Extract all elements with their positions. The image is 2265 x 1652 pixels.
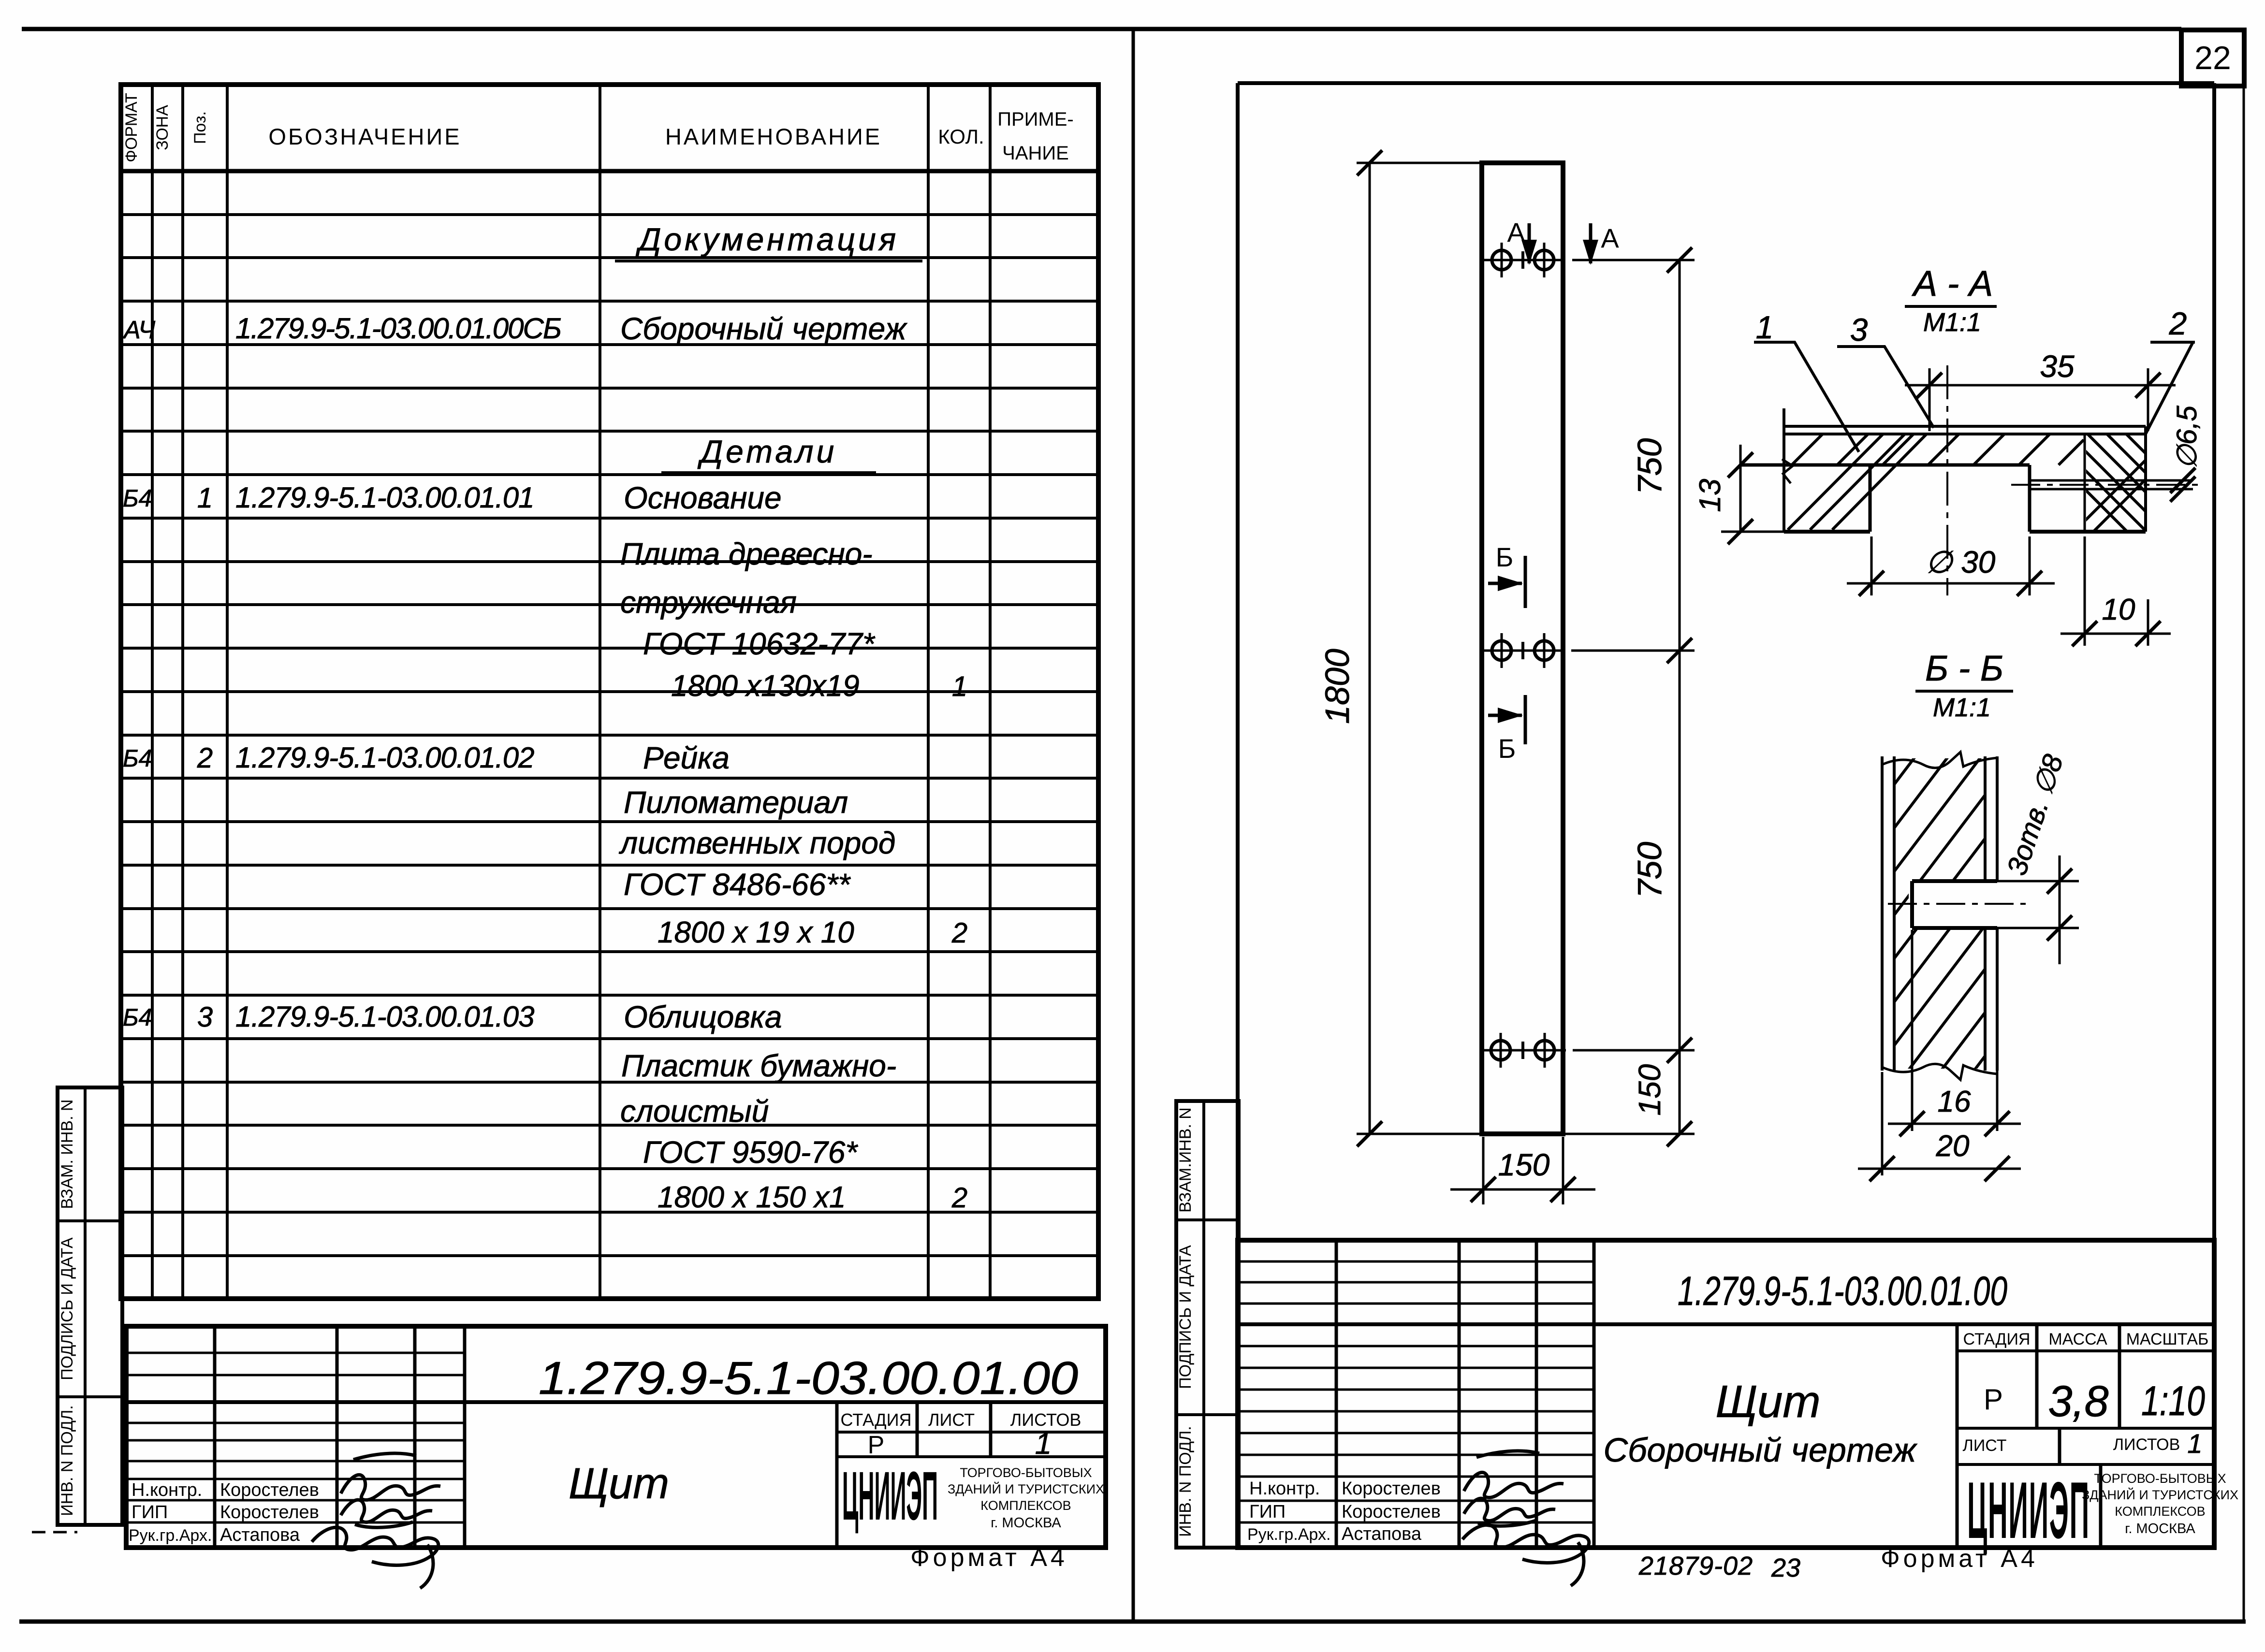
svg-text:Коростелев: Коростелев <box>220 1480 319 1500</box>
svg-text:ПОДПИСЬ И ДАТА: ПОДПИСЬ И ДАТА <box>1176 1245 1195 1389</box>
svg-text:Сборочный чертеж: Сборочный чертеж <box>620 311 907 346</box>
svg-text:2: 2 <box>197 742 213 774</box>
svg-text:750: 750 <box>1631 842 1668 898</box>
svg-text:ЛИСТ: ЛИСТ <box>1963 1436 2007 1455</box>
svg-text:13: 13 <box>1694 479 1727 512</box>
svg-text:КОЛ.: КОЛ. <box>938 125 984 148</box>
svg-text:ЗДАНИЙ И ТУРИСТСКИХ: ЗДАНИЙ И ТУРИСТСКИХ <box>2082 1487 2238 1502</box>
svg-text:1800: 1800 <box>1318 649 1356 724</box>
svg-text:М1:1: М1:1 <box>1933 693 1991 722</box>
svg-text:Щит: Щит <box>569 1460 669 1508</box>
svg-text:ЦНИИЭП: ЦНИИЭП <box>1967 1466 2090 1555</box>
svg-text:ГОСТ 8486-66**: ГОСТ 8486-66** <box>624 867 851 902</box>
svg-text:слоистый: слоистый <box>620 1094 769 1129</box>
svg-text:150: 150 <box>1498 1147 1550 1182</box>
svg-text:20: 20 <box>1936 1130 1970 1163</box>
svg-text:1.279.9-5.1-03.00.01.00: 1.279.9-5.1-03.00.01.00 <box>1678 1268 2007 1314</box>
svg-text:ЧАНИЕ: ЧАНИЕ <box>1002 143 1069 164</box>
svg-text:ИНВ. N ПОДЛ.: ИНВ. N ПОДЛ. <box>1176 1426 1195 1536</box>
svg-text:ГОСТ 10632-77*: ГОСТ 10632-77* <box>643 626 876 661</box>
svg-text:22: 22 <box>2194 40 2231 76</box>
svg-text:Б4: Б4 <box>123 485 152 512</box>
svg-text:НАИМЕНОВАНИЕ: НАИМЕНОВАНИЕ <box>665 124 882 149</box>
svg-text:Формат А4: Формат А4 <box>1881 1545 2038 1573</box>
svg-text:Б - Б: Б - Б <box>1925 648 2003 688</box>
svg-text:СТАДИЯ: СТАДИЯ <box>1963 1330 2031 1348</box>
svg-text:Н.контр.: Н.контр. <box>1249 1478 1320 1499</box>
svg-text:1.279.9-5.1-03.00.01.03: 1.279.9-5.1-03.00.01.03 <box>235 1000 534 1033</box>
svg-text:ПОДЛИСЬ И ДАТА: ПОДЛИСЬ И ДАТА <box>58 1237 76 1380</box>
svg-text:Н.контр.: Н.контр. <box>132 1480 202 1500</box>
svg-text:Облицовка: Облицовка <box>624 1000 782 1034</box>
svg-text:1.279.9-5.1-03.00.01.00: 1.279.9-5.1-03.00.01.00 <box>539 1352 1078 1404</box>
svg-text:ВЗАМ.ИНВ. N: ВЗАМ.ИНВ. N <box>1176 1107 1195 1213</box>
svg-text:Б: Б <box>1496 542 1514 572</box>
svg-text:СТАДИЯ: СТАДИЯ <box>840 1410 911 1430</box>
svg-text:1.279.9-5.1-03.00.01.01: 1.279.9-5.1-03.00.01.01 <box>235 481 534 514</box>
svg-text:Астапова: Астапова <box>220 1525 300 1545</box>
svg-text:Коростелев: Коростелев <box>220 1502 319 1522</box>
svg-text:23: 23 <box>1771 1553 1800 1582</box>
svg-text:1: 1 <box>197 482 213 514</box>
svg-text:М1:1: М1:1 <box>1923 308 1981 337</box>
svg-text:ЗДАНИЙ И ТУРИСТСКИХ: ЗДАНИЙ И ТУРИСТСКИХ <box>948 1481 1104 1496</box>
svg-text:А: А <box>1601 223 1619 253</box>
svg-text:1800 х 19 х 10: 1800 х 19 х 10 <box>658 916 854 949</box>
svg-text:3: 3 <box>1850 312 1868 348</box>
svg-text:2: 2 <box>2169 305 2187 341</box>
svg-text:Рейка: Рейка <box>643 740 730 775</box>
svg-text:1: 1 <box>952 671 967 702</box>
svg-text:35: 35 <box>2040 349 2075 384</box>
svg-text:Формат А4: Формат А4 <box>910 1544 1068 1572</box>
svg-text:ЦНИИЭП: ЦНИИЭП <box>842 1458 938 1535</box>
svg-text:Сборочный чертеж: Сборочный чертеж <box>1604 1431 1918 1469</box>
svg-text:21879-02: 21879-02 <box>1638 1551 1753 1580</box>
svg-text:Б4: Б4 <box>123 745 152 772</box>
svg-text:∅6,5: ∅6,5 <box>2171 406 2203 469</box>
svg-text:Р: Р <box>1984 1383 2003 1416</box>
svg-text:ЛИСТОВ: ЛИСТОВ <box>2113 1435 2180 1454</box>
svg-text:ИНВ. N ПОДЛ.: ИНВ. N ПОДЛ. <box>58 1405 76 1516</box>
svg-text:ЛИСТ: ЛИСТ <box>928 1410 975 1430</box>
svg-text:Пластик бумажно-: Пластик бумажно- <box>621 1048 896 1083</box>
svg-text:10: 10 <box>2102 593 2135 626</box>
svg-text:1.279.9-5.1-03.00.01.00СБ: 1.279.9-5.1-03.00.01.00СБ <box>235 312 561 345</box>
svg-text:АЧ: АЧ <box>122 316 156 344</box>
svg-text:Коростелев: Коростелев <box>1342 1502 1441 1522</box>
svg-text:750: 750 <box>1631 438 1668 495</box>
svg-text:3,8: 3,8 <box>2048 1377 2108 1426</box>
svg-text:ПРИМЕ-: ПРИМЕ- <box>997 109 1074 130</box>
svg-text:ЛИСТОВ: ЛИСТОВ <box>1010 1410 1081 1430</box>
svg-text:Основание: Основание <box>624 480 782 515</box>
svg-text:г. МОСКВА: г. МОСКВА <box>991 1515 1061 1531</box>
svg-text:Детали: Детали <box>697 434 837 469</box>
svg-text:ГОСТ 9590-76*: ГОСТ 9590-76* <box>643 1135 858 1170</box>
svg-text:ГИП: ГИП <box>132 1502 168 1522</box>
svg-text:ОБОЗНАЧЕНИЕ: ОБОЗНАЧЕНИЕ <box>268 124 461 149</box>
svg-text:1: 1 <box>1035 1427 1052 1461</box>
svg-text:А - А: А - А <box>1912 263 1993 304</box>
svg-text:3: 3 <box>197 1001 213 1033</box>
svg-text:ТОРГОВО-БЫТОВЫХ: ТОРГОВО-БЫТОВЫХ <box>960 1465 1092 1480</box>
svg-text:∅ 30: ∅ 30 <box>1926 545 1996 580</box>
svg-text:Б4: Б4 <box>123 1004 152 1031</box>
svg-text:МАССА: МАССА <box>2048 1330 2107 1348</box>
svg-text:16: 16 <box>1938 1085 1971 1118</box>
svg-text:Рук.гр.Арх.: Рук.гр.Арх. <box>1247 1525 1330 1544</box>
svg-text:1: 1 <box>2187 1428 2202 1459</box>
svg-text:ВЗАМ. ИНВ. N: ВЗАМ. ИНВ. N <box>58 1099 76 1209</box>
svg-text:г. МОСКВА: г. МОСКВА <box>2125 1521 2195 1536</box>
svg-text:стружечная: стружечная <box>620 585 797 620</box>
svg-text:150: 150 <box>1632 1064 1667 1116</box>
svg-text:1800 х130х19: 1800 х130х19 <box>671 669 860 703</box>
svg-text:ГИП: ГИП <box>1249 1502 1286 1522</box>
svg-text:2: 2 <box>951 917 967 949</box>
svg-text:КОМПЛЕКСОВ: КОМПЛЕКСОВ <box>980 1498 1071 1513</box>
svg-text:МАСШТАБ: МАСШТАБ <box>2126 1330 2209 1348</box>
svg-text:Астапова: Астапова <box>1342 1524 1422 1544</box>
svg-text:1.279.9-5.1-03.00.01.02: 1.279.9-5.1-03.00.01.02 <box>235 741 534 774</box>
svg-text:ФОРМАТ: ФОРМАТ <box>122 93 141 162</box>
svg-text:ЗОНА: ЗОНА <box>153 105 172 150</box>
svg-text:Плита древесно-: Плита древесно- <box>620 536 873 571</box>
svg-text:Щит: Щит <box>1715 1376 1820 1427</box>
svg-text:Рук.гр.Арх.: Рук.гр.Арх. <box>129 1526 212 1545</box>
svg-text:Документация: Документация <box>635 221 899 257</box>
svg-text:КОМПЛЕКСОВ: КОМПЛЕКСОВ <box>2115 1504 2205 1519</box>
svg-text:2: 2 <box>951 1182 967 1214</box>
svg-text:Р: Р <box>868 1431 885 1459</box>
svg-text:Пиломатериал: Пиломатериал <box>624 785 848 820</box>
svg-text:Б: Б <box>1498 733 1516 764</box>
svg-text:1:10: 1:10 <box>2141 1378 2205 1424</box>
svg-text:Поз.: Поз. <box>191 111 209 144</box>
svg-text:ТОРГОВО-БЫТОВЫХ: ТОРГОВО-БЫТОВЫХ <box>2094 1471 2226 1486</box>
svg-text:Коростелев: Коростелев <box>1342 1478 1441 1499</box>
svg-text:лиственных пород: лиственных пород <box>618 826 895 860</box>
svg-text:1800 х 150 х1: 1800 х 150 х1 <box>658 1181 846 1214</box>
svg-text:1: 1 <box>1756 309 1774 345</box>
